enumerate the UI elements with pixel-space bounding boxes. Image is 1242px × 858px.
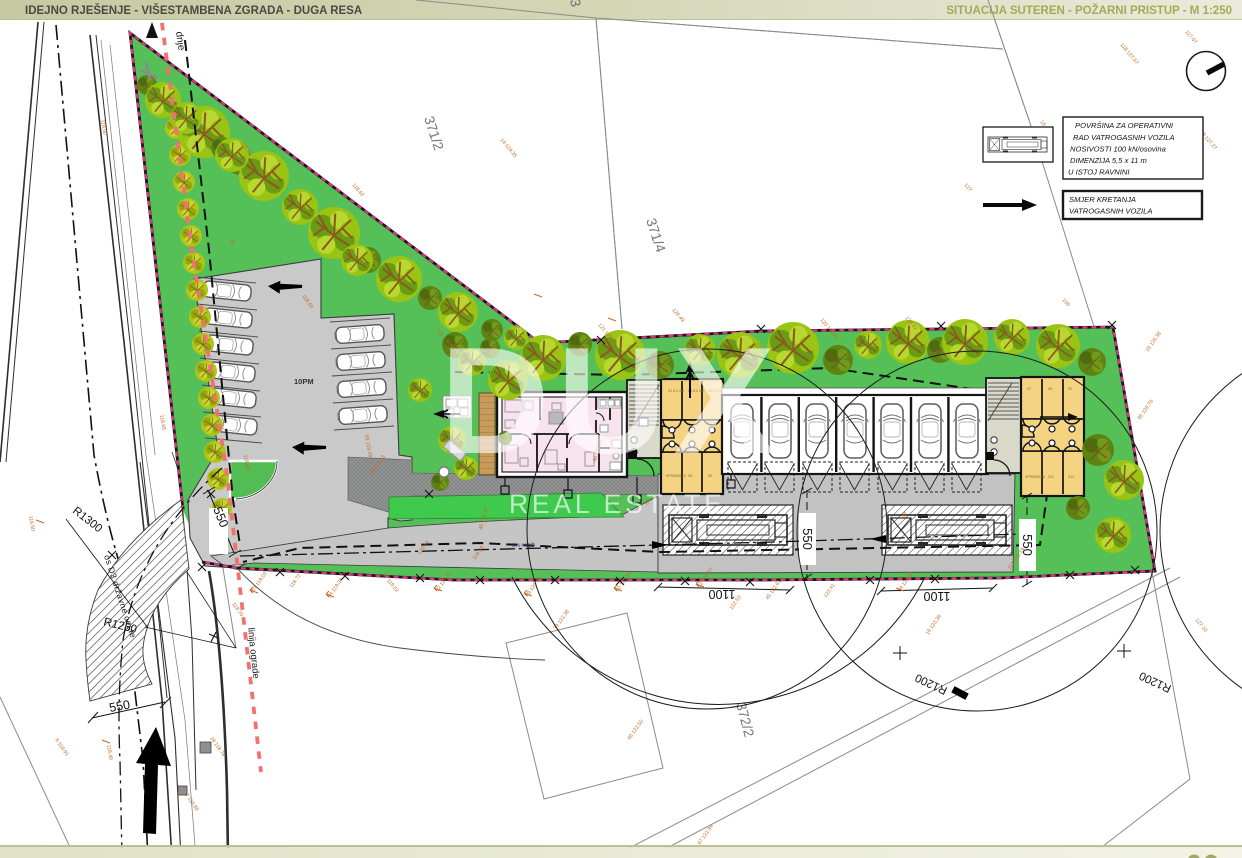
- svg-text:1100: 1100: [709, 587, 736, 601]
- svg-text:NOSIVOSTI 100 kN/osovina: NOSIVOSTI 100 kN/osovina: [1070, 145, 1166, 154]
- svg-text:550: 550: [800, 528, 815, 550]
- svg-text:SPREMISTA: SPREMISTA: [1025, 475, 1046, 479]
- svg-text:S8: S8: [1048, 387, 1052, 391]
- svg-text:U ISTOJ RAVNINI: U ISTOJ RAVNINI: [1068, 168, 1130, 177]
- svg-text:POVRŠINA ZA OPERATIVNI: POVRŠINA ZA OPERATIVNI: [1075, 121, 1174, 130]
- svg-text:1100: 1100: [924, 589, 951, 603]
- svg-text:10PM: 10PM: [294, 377, 314, 386]
- svg-text:S12: S12: [1068, 475, 1074, 479]
- svg-text:SMJER KRETANJA: SMJER KRETANJA: [1069, 195, 1136, 204]
- svg-text:25: 25: [228, 239, 235, 246]
- svg-text:IDEJNO RJEŠENJE - VIŠESTAMBENA: IDEJNO RJEŠENJE - VIŠESTAMBENA ZGRADA - …: [25, 4, 362, 17]
- svg-text:RAD VATROGASNIH VOZILA: RAD VATROGASNIH VOZILA: [1073, 133, 1175, 142]
- svg-text:S9: S9: [1068, 387, 1072, 391]
- svg-text:9% nagib: 9% nagib: [512, 542, 535, 549]
- svg-text:SITUACIJA SUTEREN - POŽARNI PR: SITUACIJA SUTEREN - POŽARNI PRISTUP - M …: [946, 4, 1232, 17]
- svg-text:S11: S11: [1048, 475, 1054, 479]
- svg-text:S7: S7: [1027, 387, 1031, 391]
- svg-text:DUX: DUX: [440, 316, 782, 486]
- svg-text:VATROGASNIH VOZILA: VATROGASNIH VOZILA: [1069, 207, 1152, 216]
- svg-text:DIMENZIJA 5,5 x 11 m: DIMENZIJA 5,5 x 11 m: [1070, 156, 1147, 165]
- svg-text:REAL ESTATE: REAL ESTATE: [509, 489, 726, 519]
